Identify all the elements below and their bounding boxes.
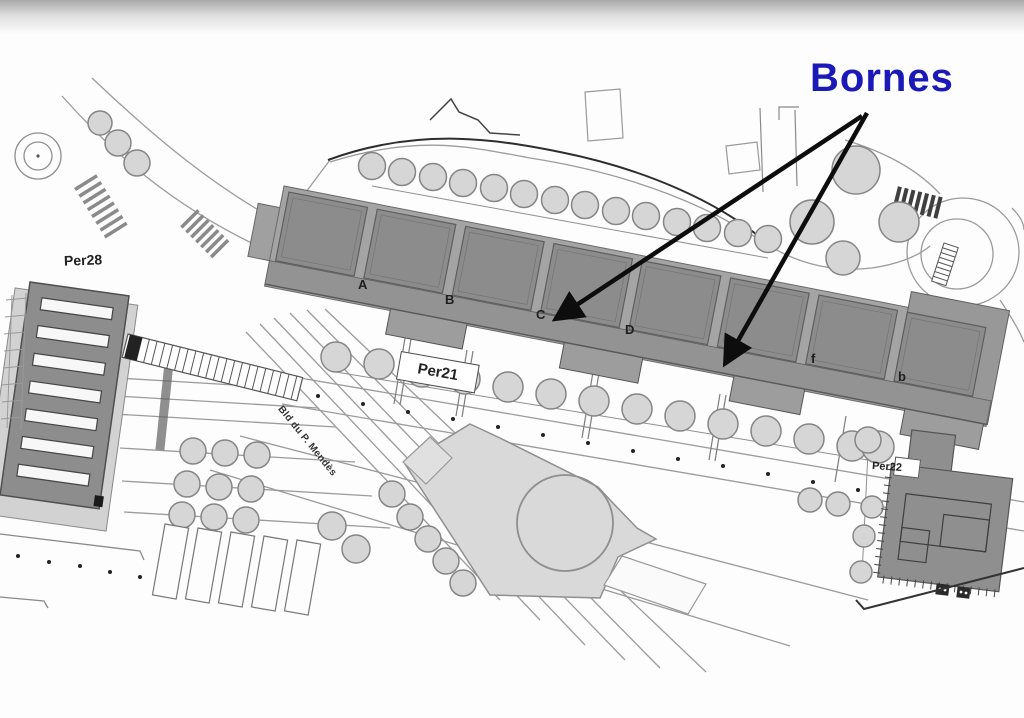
ring-feature [15,133,61,179]
central-building [403,424,706,614]
zone-label-b: B [445,292,454,307]
zone-label-c: C [536,307,545,322]
site-plan: Bornes Per28 Per21 Per22 A B C D f b Bld… [0,0,1024,718]
zone-label-a: A [358,277,367,292]
parking-beds [152,524,320,615]
stairs-hatch [932,243,959,286]
per28-building [0,280,139,531]
zone-label-f: f [811,351,815,366]
zone-label-b2: b [898,369,906,384]
bornes-annotation-label: Bornes [810,56,954,101]
zone-label-d: D [625,322,634,337]
per22-building [872,427,1017,597]
stair-smudge [155,362,173,450]
per22-label: Per22 [872,460,903,474]
plan-drawing [0,0,1024,718]
footbridge [122,334,302,401]
per28-label: Per28 [64,251,103,268]
